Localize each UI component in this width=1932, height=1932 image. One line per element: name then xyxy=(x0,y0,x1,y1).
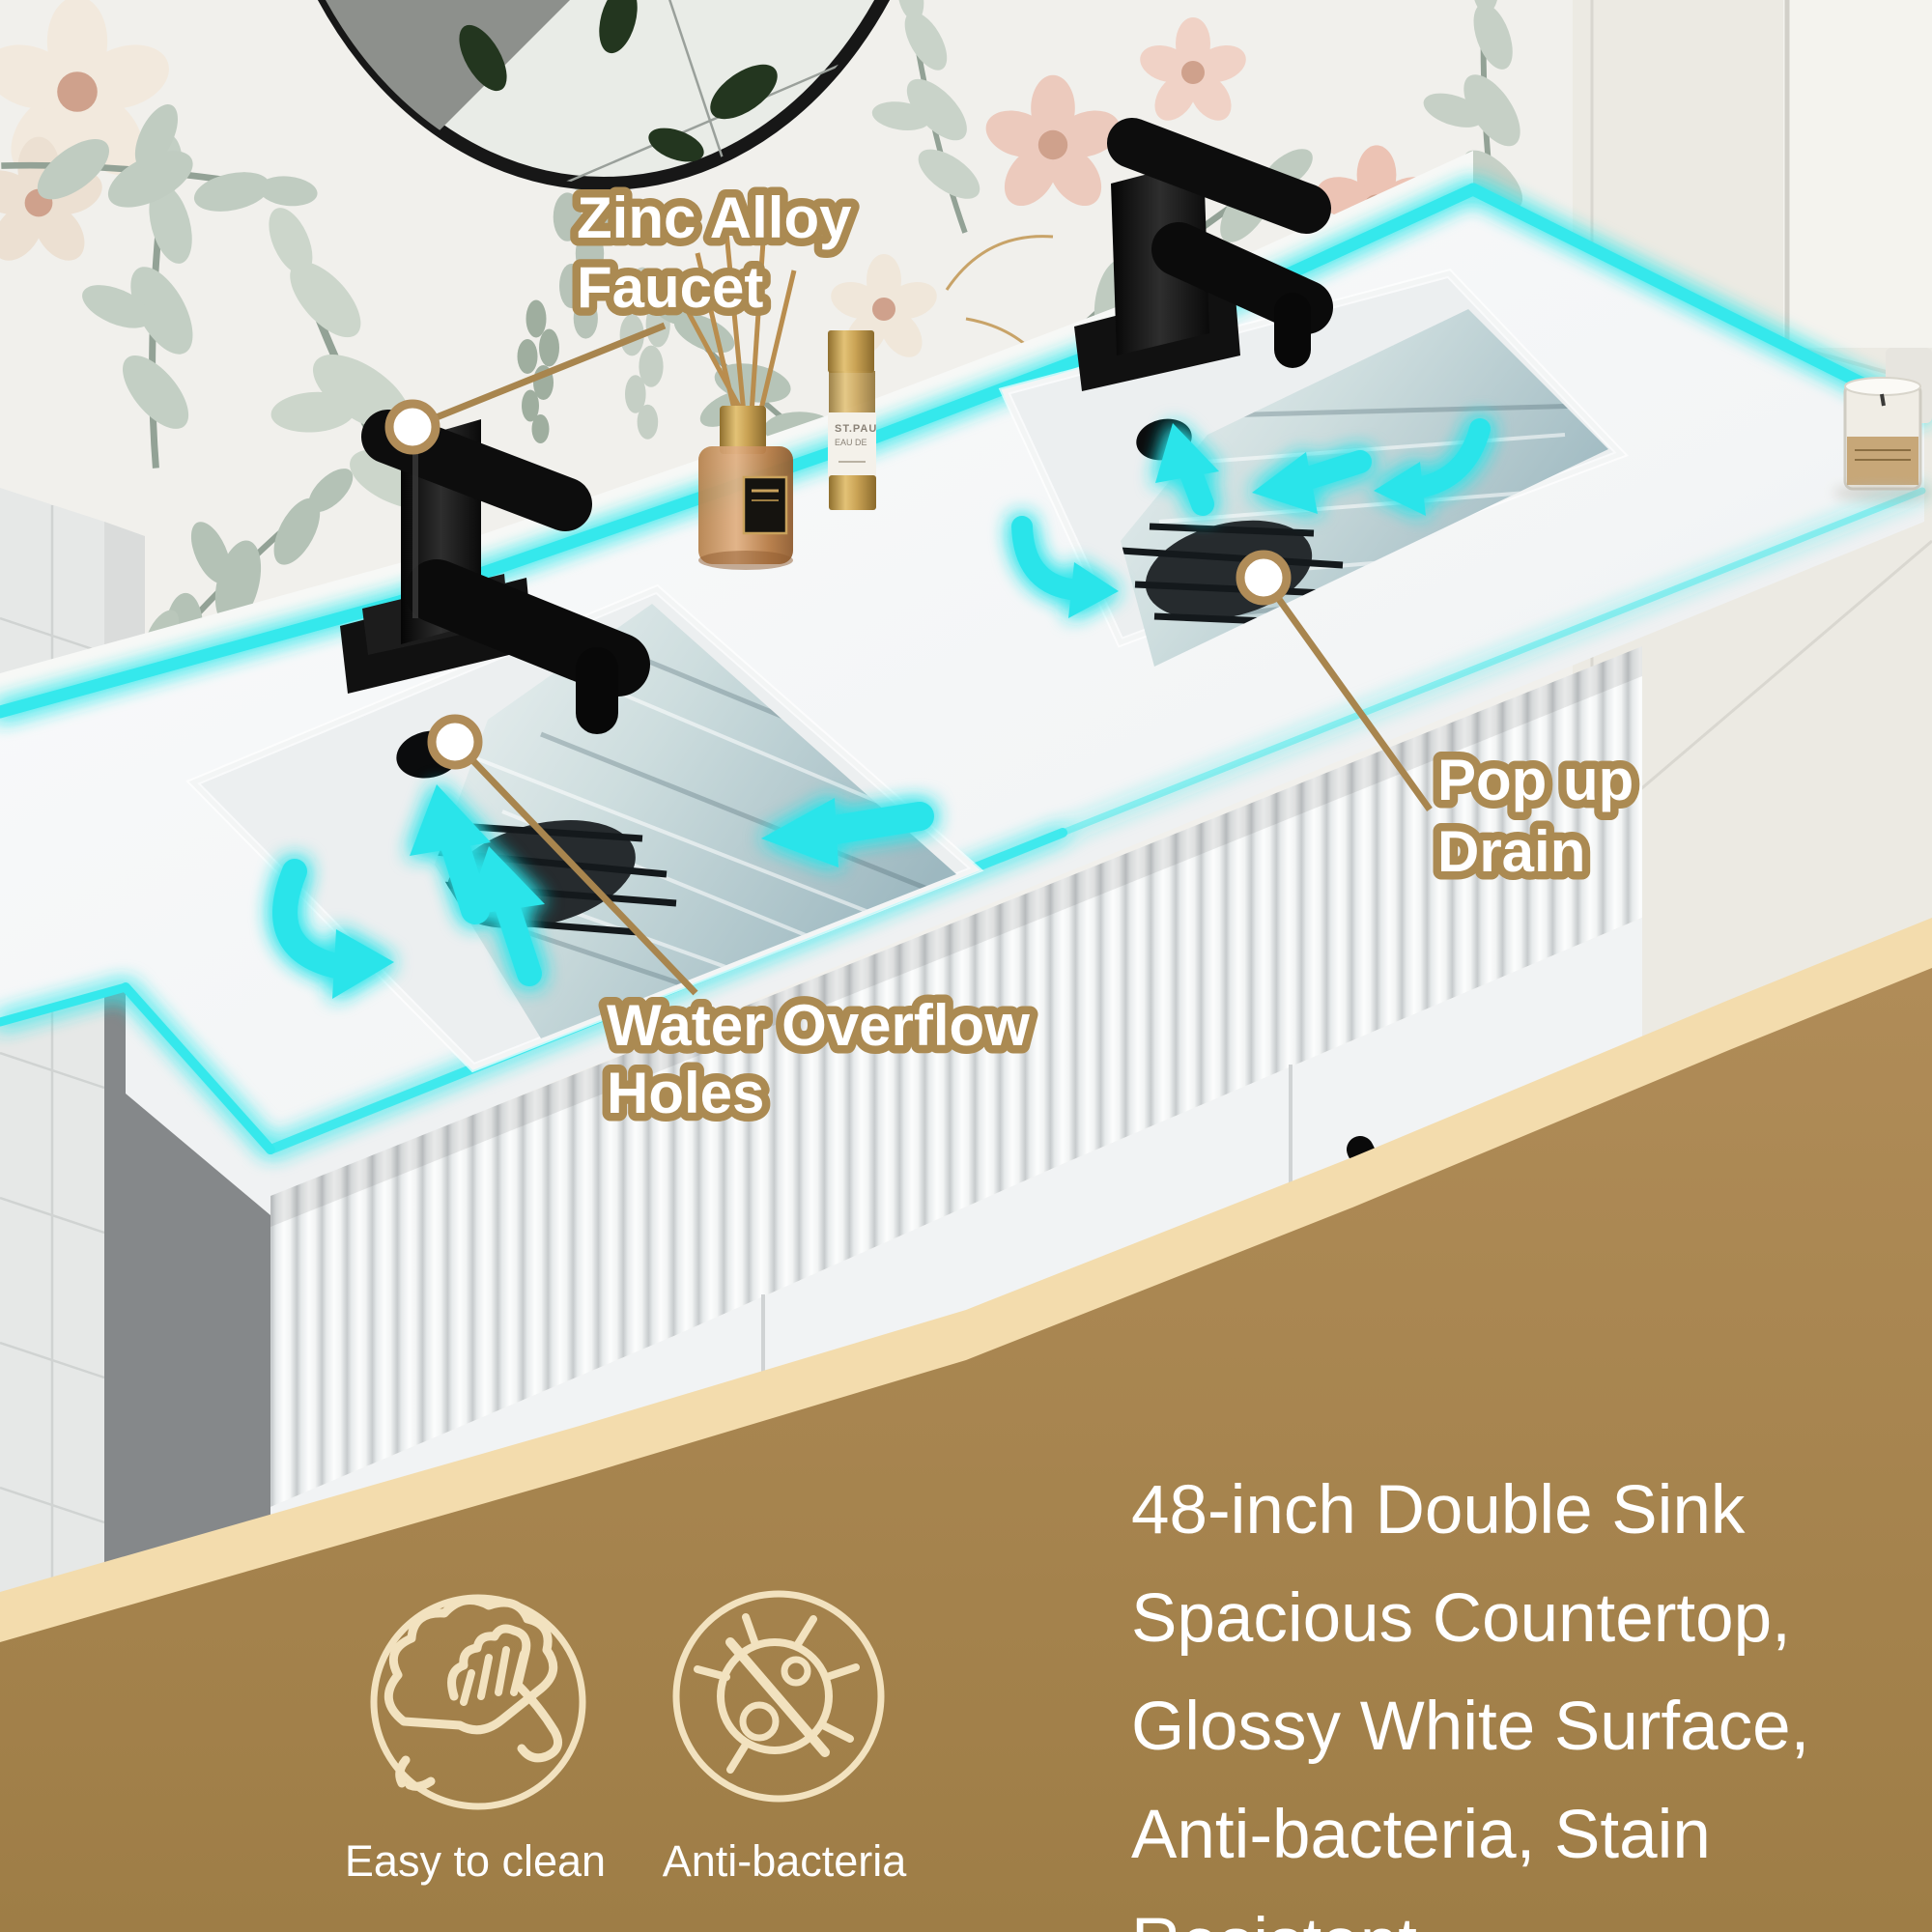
callout-overflow-line1: Water Overflow xyxy=(607,993,1030,1058)
marker-dot-overflow xyxy=(432,719,478,765)
callout-drain-line2: Drain xyxy=(1437,819,1585,884)
product-description: 48-inch Double Sink Spacious Countertop,… xyxy=(1131,1457,1932,1932)
diffuser-label xyxy=(744,477,786,533)
callout-overflow-line2: Holes xyxy=(607,1061,764,1125)
feature-label-anti-bacteria: Anti-bacteria xyxy=(663,1836,908,1886)
perfume-label-sub: EAU DE xyxy=(835,438,867,447)
perfume-bottle: ST.PAU EAU DE xyxy=(828,330,877,510)
callout-faucet-line2: Faucet xyxy=(577,255,763,320)
perfume-label-brand: ST.PAU xyxy=(835,423,877,435)
candle-glass xyxy=(1845,378,1920,489)
callout-faucet-line1: Zinc Alloy xyxy=(577,185,852,250)
perfume-cap xyxy=(828,330,874,373)
callout-drain-line1: Pop up xyxy=(1437,748,1634,812)
wall-column xyxy=(1783,0,1932,348)
product-image: ST.PAU EAU DE xyxy=(0,0,1932,1932)
marker-dot-faucet xyxy=(389,404,436,450)
marker-dot-drain xyxy=(1240,554,1287,601)
feature-label-easy-clean: Easy to clean xyxy=(345,1836,606,1886)
